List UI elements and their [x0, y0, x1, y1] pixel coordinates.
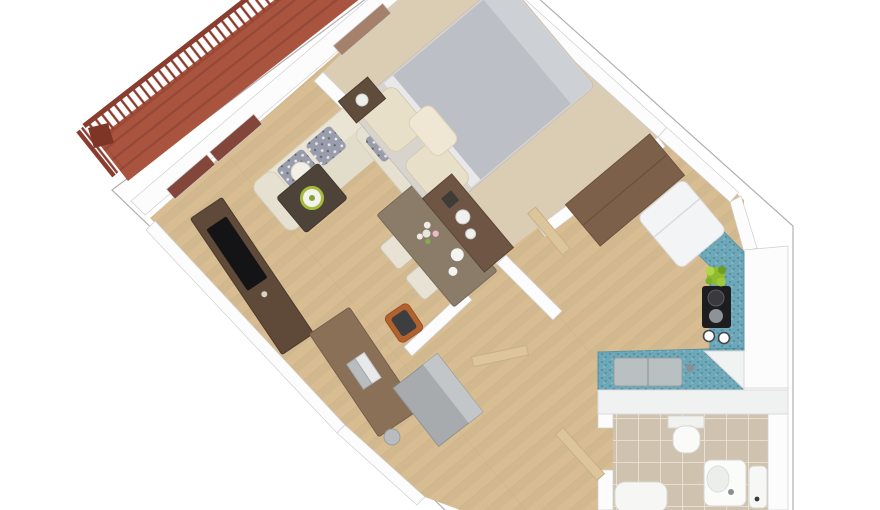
floor-plan-canvas: [0, 0, 880, 510]
kitchen-sink: [614, 358, 694, 386]
sink-faucet: [686, 364, 694, 372]
kitchen-base-cabinets: [598, 390, 788, 414]
jar-1: [704, 331, 715, 342]
washbasin: [704, 460, 746, 506]
floor-plan-stage: [0, 0, 880, 510]
bathtub: [615, 482, 667, 510]
toilet-bowl: [673, 426, 700, 453]
pot-2: [709, 309, 723, 323]
east-wall-block: [744, 246, 788, 390]
washbasin-bowl: [707, 466, 729, 492]
bidet-body: [749, 466, 767, 508]
bidet-drain: [755, 497, 760, 502]
potted-plant: [705, 266, 726, 287]
jar-2: [719, 333, 730, 344]
cooktop: [702, 286, 731, 328]
washbasin-faucet: [728, 489, 734, 495]
round-stool: [384, 429, 400, 445]
bidet: [749, 466, 767, 508]
pot-1: [708, 290, 724, 306]
bathroom-west-wall-upper: [598, 414, 613, 428]
bathroom-east-wall: [768, 414, 788, 510]
